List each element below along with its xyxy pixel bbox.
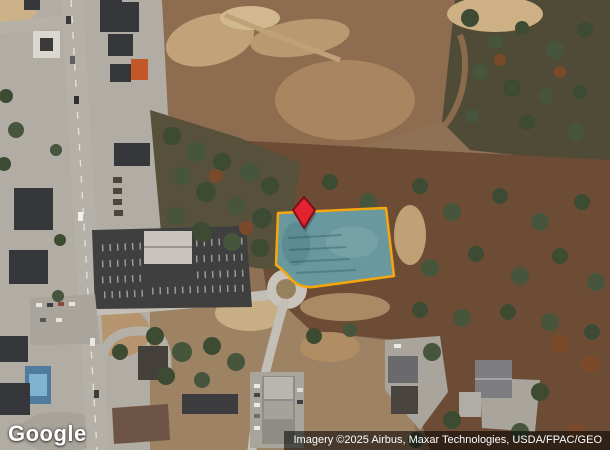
tree <box>412 178 428 194</box>
tree <box>453 309 471 327</box>
tree <box>541 313 559 331</box>
tree <box>461 9 479 27</box>
tree <box>492 188 508 204</box>
tree <box>186 142 206 162</box>
vehicle <box>254 384 260 388</box>
tree <box>252 208 272 228</box>
vehicle <box>70 56 75 64</box>
tree <box>568 124 584 140</box>
vehicle <box>94 390 99 398</box>
trailer <box>113 199 122 205</box>
tree <box>423 343 441 361</box>
parcel-texture <box>326 226 378 258</box>
tree <box>443 411 461 429</box>
tree <box>172 342 192 362</box>
tree <box>192 222 212 242</box>
autumn-tree <box>550 334 570 354</box>
building <box>114 143 150 166</box>
building <box>100 0 122 32</box>
tree <box>443 203 461 221</box>
tree <box>50 144 62 156</box>
tree <box>196 182 216 202</box>
building <box>391 386 418 414</box>
vehicle <box>56 318 62 322</box>
tree <box>421 259 439 277</box>
tree <box>227 197 245 215</box>
google-logo[interactable]: Google <box>8 421 87 447</box>
tree <box>573 85 587 99</box>
tree <box>574 194 590 210</box>
tree <box>515 21 529 35</box>
tree <box>584 324 600 340</box>
vehicle <box>66 16 71 24</box>
vehicle <box>254 414 260 418</box>
vehicle <box>254 393 260 397</box>
vehicle <box>47 303 53 307</box>
tree <box>157 367 175 385</box>
storage-roof-section <box>264 401 293 419</box>
tree <box>203 337 221 355</box>
vehicle <box>254 426 260 430</box>
canopy-detail <box>40 38 53 51</box>
vehicle <box>254 403 260 407</box>
brown-roof-building <box>112 404 170 444</box>
parcel-highlight-group <box>276 208 394 287</box>
tree <box>552 248 568 264</box>
tree <box>472 64 488 80</box>
tree <box>465 109 479 123</box>
tree <box>322 174 338 190</box>
autumn-tree <box>494 54 506 66</box>
vehicle <box>58 302 64 306</box>
autumn-tree <box>554 66 566 78</box>
tree <box>546 41 564 59</box>
blue-roof-panel <box>29 374 47 396</box>
tree <box>223 233 241 251</box>
vehicle <box>74 96 79 104</box>
building <box>110 64 131 82</box>
tree <box>251 239 269 257</box>
autumn-tree <box>239 221 253 235</box>
tree <box>412 302 428 318</box>
tree <box>343 323 357 337</box>
building <box>459 392 481 417</box>
tree <box>213 153 231 171</box>
tree <box>194 372 210 388</box>
vehicle <box>297 388 303 392</box>
tree <box>531 213 549 231</box>
tree <box>503 79 521 97</box>
vehicle <box>78 212 83 221</box>
orange-roof-building <box>131 59 148 80</box>
building <box>108 34 133 56</box>
tree <box>167 207 185 225</box>
tree <box>173 167 191 185</box>
tree <box>538 88 554 104</box>
satellite-map[interactable]: Google Imagery ©2025 Airbus, Maxar Techn… <box>0 0 610 450</box>
tree <box>306 328 322 344</box>
dirt-patch <box>300 293 390 321</box>
tree <box>261 177 279 195</box>
satellite-imagery <box>0 0 610 450</box>
tree <box>52 290 64 302</box>
tree <box>227 353 245 371</box>
building <box>24 0 40 10</box>
tree <box>500 304 516 320</box>
tree <box>54 234 66 246</box>
tree <box>587 273 605 291</box>
building <box>388 356 418 383</box>
autumn-tree <box>209 169 223 183</box>
tree <box>468 246 484 262</box>
building <box>0 383 30 415</box>
tree <box>531 383 549 401</box>
tree <box>577 22 593 38</box>
vehicle <box>40 318 46 322</box>
building <box>14 188 53 230</box>
building <box>182 394 238 414</box>
tree <box>8 122 24 138</box>
building <box>0 336 28 362</box>
storage-roof-section <box>264 377 293 399</box>
vehicle <box>90 338 95 346</box>
building <box>9 250 48 284</box>
building <box>122 2 139 32</box>
vehicle <box>394 344 401 348</box>
vehicle <box>36 303 42 307</box>
tree <box>163 127 181 145</box>
vehicle <box>69 302 75 306</box>
tree <box>112 344 128 360</box>
tree <box>146 327 164 345</box>
tree <box>240 162 260 182</box>
tree <box>519 114 535 130</box>
autumn-tree <box>581 355 599 373</box>
tree <box>487 34 503 50</box>
dirt-patch <box>275 60 415 140</box>
map-attribution: Imagery ©2025 Airbus, Maxar Technologies… <box>284 431 610 450</box>
tree <box>511 267 529 285</box>
trailer <box>113 177 122 183</box>
trailer <box>113 188 122 194</box>
vehicle <box>297 400 303 404</box>
trailer <box>114 210 123 216</box>
dirt-clearing <box>394 205 426 265</box>
